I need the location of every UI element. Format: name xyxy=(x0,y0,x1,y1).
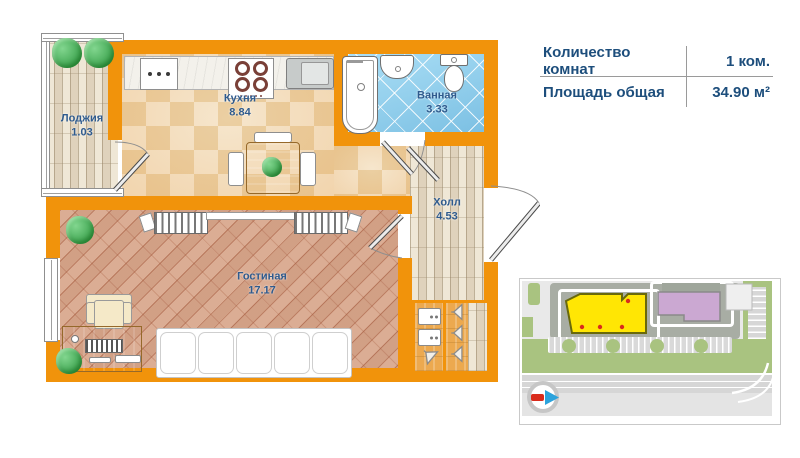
room-name: Холл xyxy=(433,196,461,210)
kitchen-label: Кухня 8.84 xyxy=(224,92,256,121)
rooms-count-label: Количество комнат xyxy=(540,46,686,76)
kitchen-cabinet xyxy=(140,58,178,90)
wall-segment xyxy=(398,196,412,214)
hanger-icon xyxy=(450,345,464,363)
hanger-icon xyxy=(417,342,441,366)
loggia-window xyxy=(41,36,50,196)
walkway xyxy=(650,281,734,327)
wall-segment xyxy=(118,40,498,54)
parking-stripes xyxy=(748,287,766,345)
page: Лоджия 1.03 Кухня 8.84 Ванная 3.33 Холл … xyxy=(0,0,800,458)
wall-segment xyxy=(484,40,498,188)
tree-bump xyxy=(562,339,576,353)
plant-icon xyxy=(84,38,114,68)
total-area-value: 34.90 м² xyxy=(686,76,773,107)
green-area xyxy=(528,283,540,305)
hanger-icon xyxy=(450,303,464,321)
living-room-window xyxy=(44,258,58,342)
site-plan-map xyxy=(522,281,772,416)
wall-segment xyxy=(425,132,498,146)
shelf xyxy=(206,212,296,220)
hanger-icon xyxy=(450,324,464,342)
room-area: 17.17 xyxy=(237,284,287,298)
closet-section xyxy=(415,303,443,371)
closet-section xyxy=(446,303,468,371)
room-name: Лоджия xyxy=(61,112,103,126)
room-area: 1.03 xyxy=(61,126,103,140)
wall-segment xyxy=(334,132,380,146)
room-name: Кухня xyxy=(224,92,256,106)
tree-bump xyxy=(694,339,708,353)
apartment-floor-plan: Лоджия 1.03 Кухня 8.84 Ванная 3.33 Холл … xyxy=(40,30,540,386)
entrance-door xyxy=(491,186,539,260)
room-area: 3.33 xyxy=(417,103,457,117)
living-room-label: Гостиная 17.17 xyxy=(237,270,287,299)
hall-label: Холл 4.53 xyxy=(433,196,461,225)
monitor-icon xyxy=(115,355,141,363)
rooms-count-value: 1 ком. xyxy=(686,46,773,76)
desk-lamp-icon xyxy=(71,335,79,343)
wall-segment xyxy=(46,196,412,210)
kitchen-chair xyxy=(228,152,244,186)
site-plan-thumbnail xyxy=(519,278,781,425)
wall-segment xyxy=(398,258,412,368)
plant-icon xyxy=(52,38,82,68)
plant-icon xyxy=(262,157,282,177)
kitchen-floor-extension xyxy=(334,146,410,196)
plant-icon xyxy=(56,348,82,374)
room-area: 4.53 xyxy=(433,210,461,224)
road-verge xyxy=(522,393,772,416)
keyboard-icon xyxy=(85,339,123,353)
tree-bump xyxy=(606,339,620,353)
kitchen-chair xyxy=(300,152,316,186)
room-name: Ванная xyxy=(417,89,457,103)
bathtub-icon xyxy=(342,56,378,134)
kitchen-sink-icon xyxy=(286,58,334,89)
sofa xyxy=(156,328,352,378)
closet-section xyxy=(468,303,487,371)
total-area-label: Площадь общая xyxy=(540,76,686,107)
loggia-label: Лоджия 1.03 xyxy=(61,112,103,141)
room-area: 8.84 xyxy=(224,106,256,120)
bathroom-label: Ванная 3.33 xyxy=(417,89,457,118)
loggia-window xyxy=(41,33,124,42)
tree-bump xyxy=(650,339,664,353)
radiator xyxy=(294,212,348,234)
plant-icon xyxy=(66,216,94,244)
hall-closet xyxy=(412,300,490,374)
green-area xyxy=(522,317,533,337)
info-panel: Количество комнат 1 ком. Площадь общая 3… xyxy=(540,46,773,107)
desk-chair xyxy=(94,300,124,329)
room-name: Гостиная xyxy=(237,270,287,284)
radiator xyxy=(154,212,208,234)
walkway xyxy=(558,289,660,341)
mouse-icon xyxy=(89,357,111,363)
loggia-window xyxy=(41,188,124,197)
